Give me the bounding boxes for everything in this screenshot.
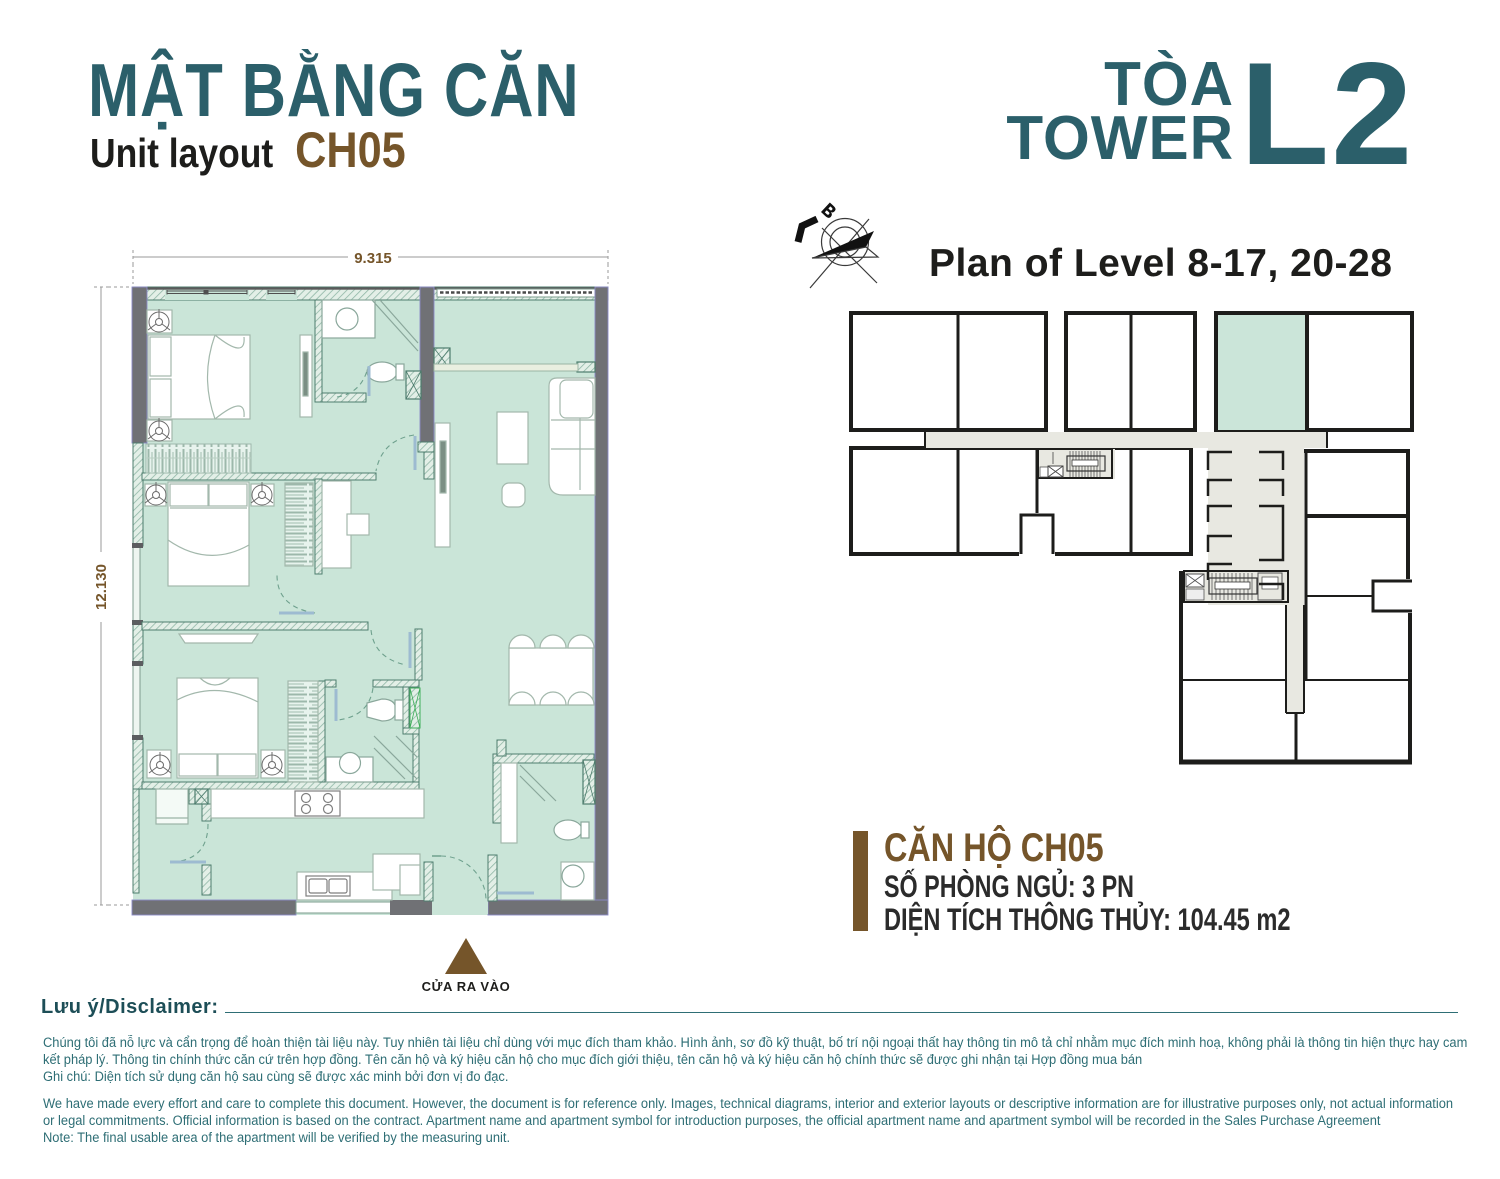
svg-text:9.315: 9.315 [354, 250, 392, 267]
svg-text:CỬA RA VÀO: CỬA RA VÀO [422, 979, 511, 994]
svg-text:12.130: 12.130 [93, 564, 110, 610]
